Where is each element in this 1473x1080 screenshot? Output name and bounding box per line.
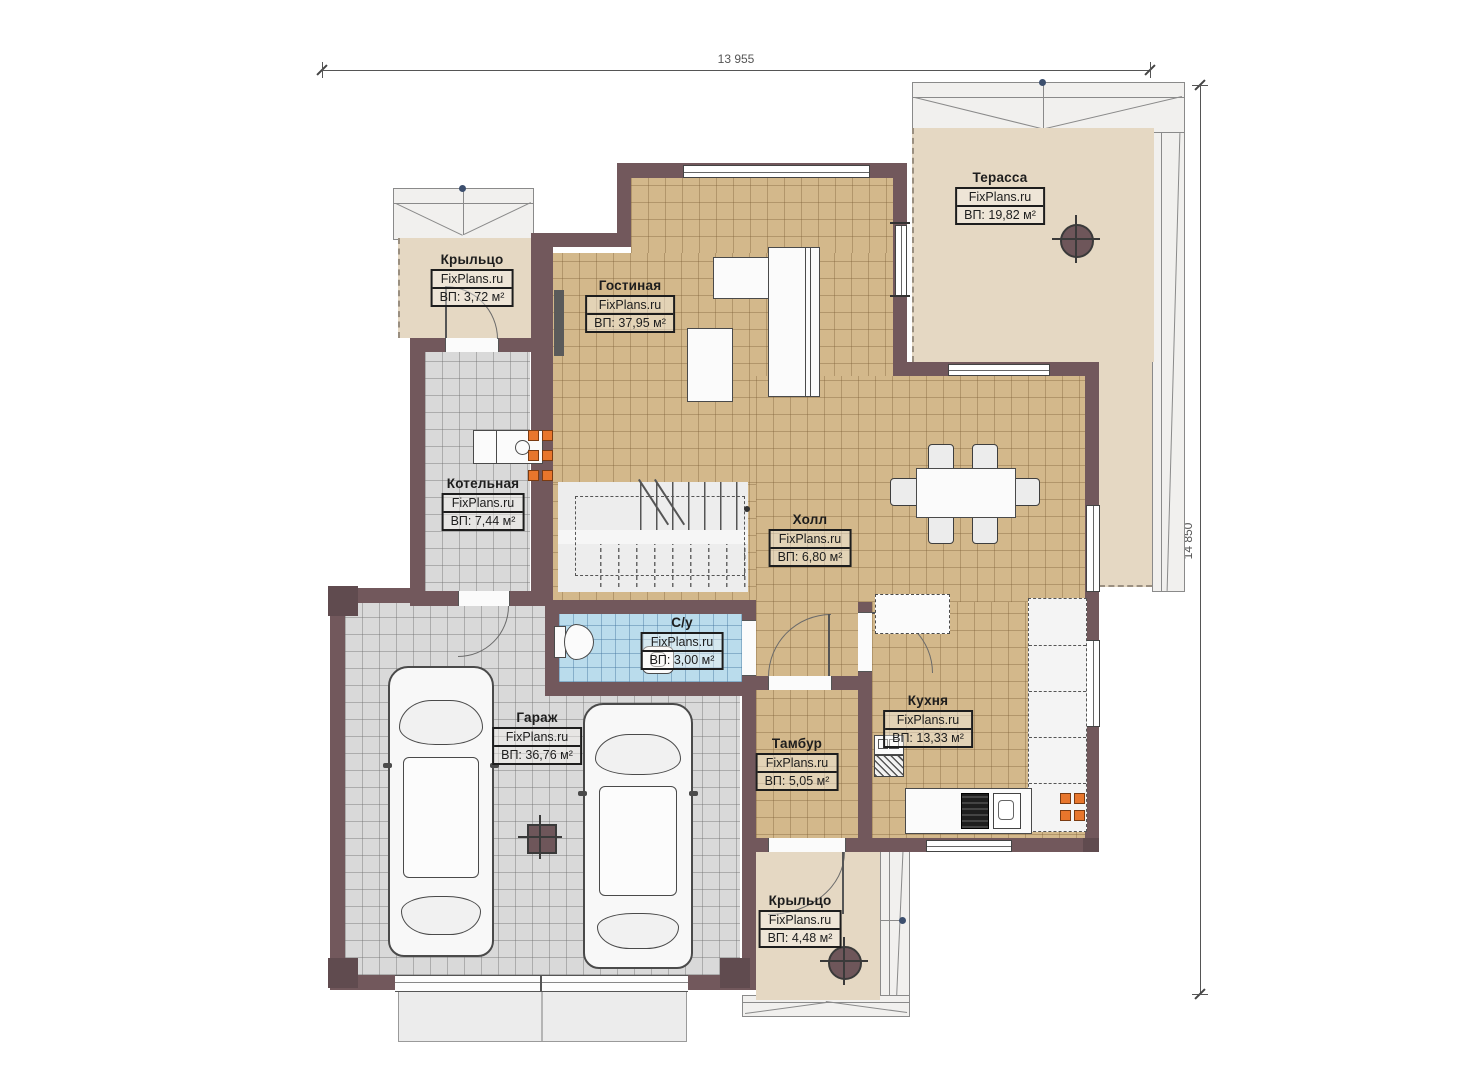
car: [583, 703, 693, 969]
coffee-table: [687, 328, 733, 402]
drain-cross: [539, 815, 541, 859]
sofa: [768, 247, 820, 397]
car: [388, 666, 494, 957]
door-opening: [768, 838, 846, 852]
roof-ridge-dot: [899, 917, 906, 924]
room-label-living: Гостиная FixPlans.ru ВП: 37,95 м²: [585, 278, 675, 333]
door-leaf: [842, 852, 844, 914]
terrace-floor-strip: [1099, 362, 1152, 587]
wall-segment: [410, 352, 425, 605]
dimension-line-top: [322, 70, 1150, 71]
tv-cabinet: [554, 290, 564, 356]
room-label-porch-top: Крыльцо FixPlans.ru ВП: 3,72 м²: [431, 252, 514, 307]
chair: [928, 514, 954, 544]
door-opening: [742, 620, 756, 676]
room-label-garage: Гараж FixPlans.ru ВП: 36,76 м²: [492, 710, 582, 765]
dimension-top-label: 13 955: [718, 52, 755, 66]
wall-segment: [1085, 362, 1099, 852]
radiator: [528, 430, 553, 441]
chair: [972, 514, 998, 544]
drain-icon: [1060, 224, 1094, 258]
dim-ext: [1192, 85, 1208, 86]
radiator: [1060, 810, 1085, 821]
door-opening: [458, 591, 510, 606]
wall-corner: [720, 958, 750, 988]
wall-segment: [330, 588, 345, 990]
kitchen-sink: [993, 793, 1021, 829]
dining-table: [916, 468, 1016, 518]
dimension-line-right: [1200, 85, 1201, 995]
dim-ext: [1192, 994, 1208, 995]
room-label-tambur: Тамбур FixPlans.ru ВП: 5,05 м²: [756, 736, 839, 791]
room-label-porch-bottom: Крыльцо FixPlans.ru ВП: 4,48 м²: [759, 893, 842, 948]
wall-corner: [1083, 838, 1099, 852]
stove-top: [874, 755, 904, 777]
terrace-floor: [912, 128, 1154, 362]
window: [683, 165, 870, 178]
terrace-sliding-door: [895, 225, 907, 297]
floor-drain-icon: [527, 824, 557, 854]
wall-segment: [531, 233, 553, 605]
garage-door: [395, 975, 688, 992]
door-opening: [768, 676, 832, 690]
fridge: [875, 594, 950, 634]
door-mark: [890, 222, 910, 224]
window: [1086, 640, 1100, 727]
floor-plan: 13 955 14 850: [0, 0, 1473, 1080]
window: [926, 840, 1012, 852]
living-floor: [631, 178, 893, 254]
radiator: [528, 450, 553, 461]
wall-corner: [328, 586, 358, 616]
room-label-hall: Холл FixPlans.ru ВП: 6,80 м²: [769, 512, 852, 567]
radiator: [1060, 793, 1085, 804]
drain-cross: [1075, 215, 1077, 263]
roof-ridge-line: [880, 920, 900, 921]
kitchen-counter: [905, 788, 1032, 834]
room-label-boiler: Котельная FixPlans.ru ВП: 7,44 м²: [442, 476, 525, 531]
garage-apron: [398, 990, 687, 1042]
room-label-wc: С/у FixPlans.ru ВП: 3,00 м²: [641, 615, 724, 670]
roof-ridge-dot: [1039, 79, 1046, 86]
porch-top-roof: [393, 188, 534, 240]
stairs: [558, 482, 748, 592]
porch-bottom-roof-side: [880, 845, 910, 1017]
wall-corner: [328, 958, 358, 988]
door-leaf: [828, 614, 830, 676]
wall-segment: [545, 682, 756, 696]
door-opening: [445, 338, 499, 352]
window: [948, 364, 1050, 376]
room-label-kitchen: Кухня FixPlans.ru ВП: 13,33 м²: [883, 693, 973, 748]
room-label-terrace: Терасса FixPlans.ru ВП: 19,82 м²: [955, 170, 1045, 225]
terrace-roof-side: [1152, 132, 1185, 592]
dim-ext: [1150, 62, 1151, 78]
wall-segment: [545, 600, 756, 614]
stove: [961, 793, 989, 829]
drain-cross: [843, 937, 845, 985]
terrace-roof: [912, 82, 1185, 134]
roof-ridge-dot: [459, 185, 466, 192]
door-mark: [890, 295, 910, 297]
drain-icon: [828, 946, 862, 980]
radiator: [528, 470, 553, 481]
window: [1086, 505, 1100, 592]
dim-ext: [322, 62, 323, 78]
door-opening: [858, 612, 872, 672]
